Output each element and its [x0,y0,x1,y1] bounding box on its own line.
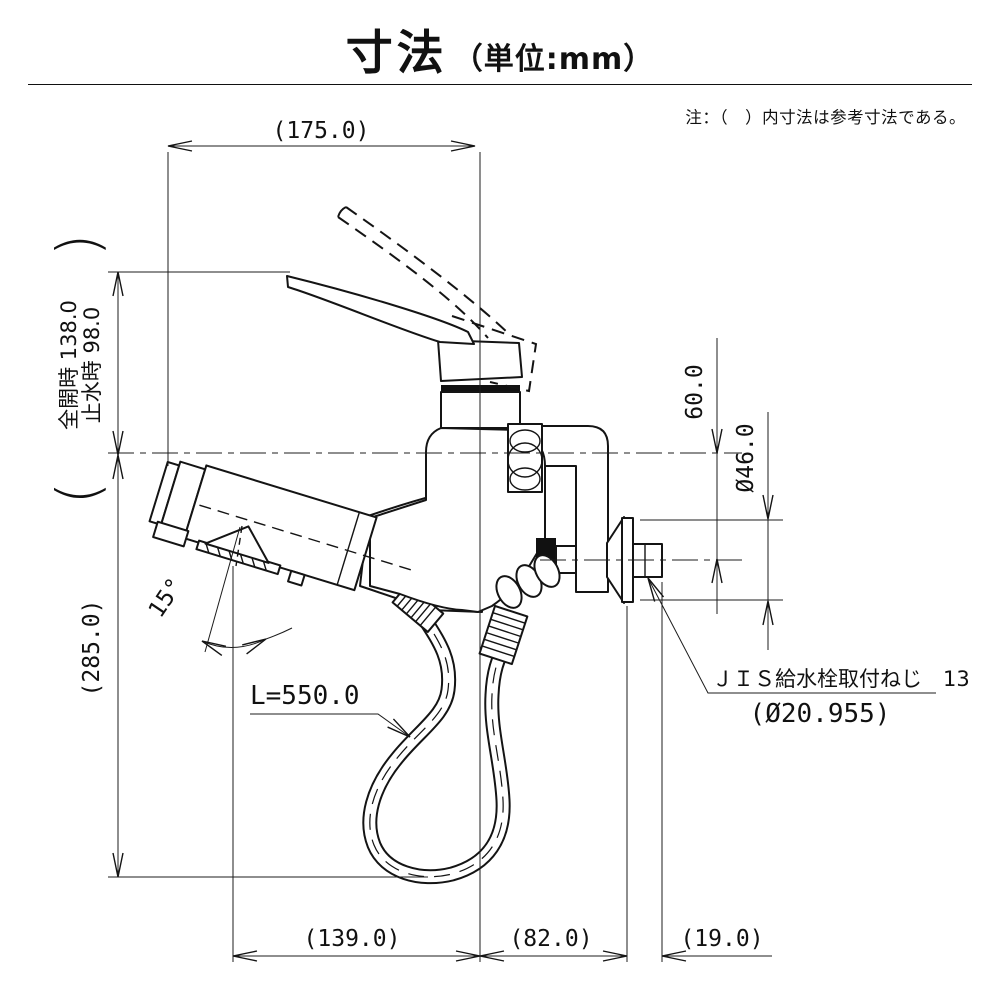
faucet-drawing [145,207,662,877]
svg-text:ＪＩＳ給水栓取付ねじ 13: ＪＩＳ給水栓取付ねじ 13 [712,667,970,691]
thread-spec-note: ＪＩＳ給水栓取付ねじ 13 (Ø20.955) [648,578,970,729]
dim-thread-length: (19.0) [662,926,772,956]
svg-text:L=550.0: L=550.0 [250,681,360,711]
svg-text:60.0: 60.0 [682,364,708,419]
dim-hose-length: L=550.0 [250,681,410,737]
dim-top-width: (175.0) [168,118,475,146]
svg-text:(: ( [44,482,112,505]
svg-text:(139.0): (139.0) [304,926,401,952]
handle-lever [287,276,474,344]
svg-text:15°: 15° [144,574,189,623]
dim-body-to-wall: (82.0) [480,926,627,956]
svg-text:(19.0): (19.0) [680,926,763,952]
svg-text:止水時 98.0: 止水時 98.0 [80,307,104,423]
dim-handle-heights: ( 全開時 138.0 止水時 98.0 ) [44,234,118,505]
dim-spout-reach: (139.0) [233,926,480,956]
check-valve [508,424,542,492]
dim-total-height: (285.0) [79,455,118,877]
spray-head-body [184,465,376,590]
svg-text:(285.0): (285.0) [79,600,105,697]
dim-flange-diameter: Ø46.0 [733,412,768,650]
svg-text:Ø46.0: Ø46.0 [733,423,759,492]
svg-text:全開時 138.0: 全開時 138.0 [57,300,81,430]
faucet-dimension-figure: (175.0) ( 全開時 138.0 止水時 98.0 ) (285.0) [0,0,1000,1000]
svg-text:(Ø20.955): (Ø20.955) [750,699,891,729]
svg-text:): ) [44,234,112,257]
dimension-drawing-page: 寸法 （単位:mm） 注：（ ）内寸法は参考寸法である。 [0,0,1000,1000]
dim-wall-offset: 60.0 [682,338,717,614]
svg-text:(82.0): (82.0) [509,926,592,952]
hose-crimp-ribs [480,606,528,664]
svg-text:(175.0): (175.0) [273,118,370,144]
